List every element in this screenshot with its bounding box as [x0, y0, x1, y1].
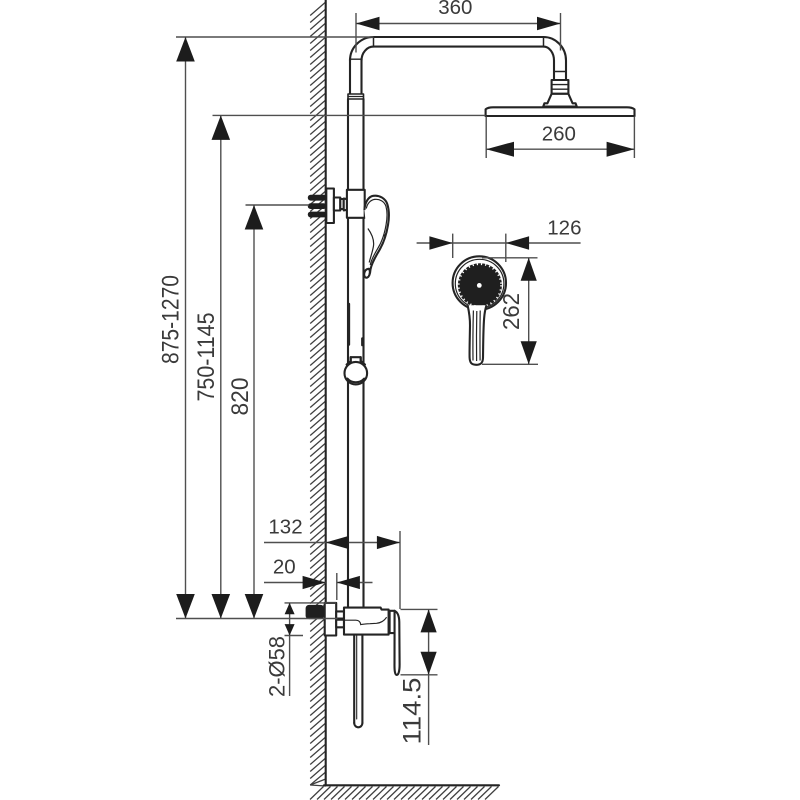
svg-text:360: 360 [438, 0, 472, 19]
svg-text:820: 820 [227, 378, 254, 416]
svg-text:260: 260 [542, 123, 576, 146]
svg-text:262: 262 [498, 293, 524, 330]
svg-text:114.5: 114.5 [399, 678, 427, 745]
svg-text:20: 20 [273, 556, 296, 579]
svg-text:2-Ø58: 2-Ø58 [265, 636, 290, 697]
svg-text:750-1145: 750-1145 [193, 313, 220, 402]
svg-text:132: 132 [268, 516, 302, 539]
svg-text:126: 126 [547, 217, 581, 240]
svg-text:875-1270: 875-1270 [158, 275, 185, 364]
